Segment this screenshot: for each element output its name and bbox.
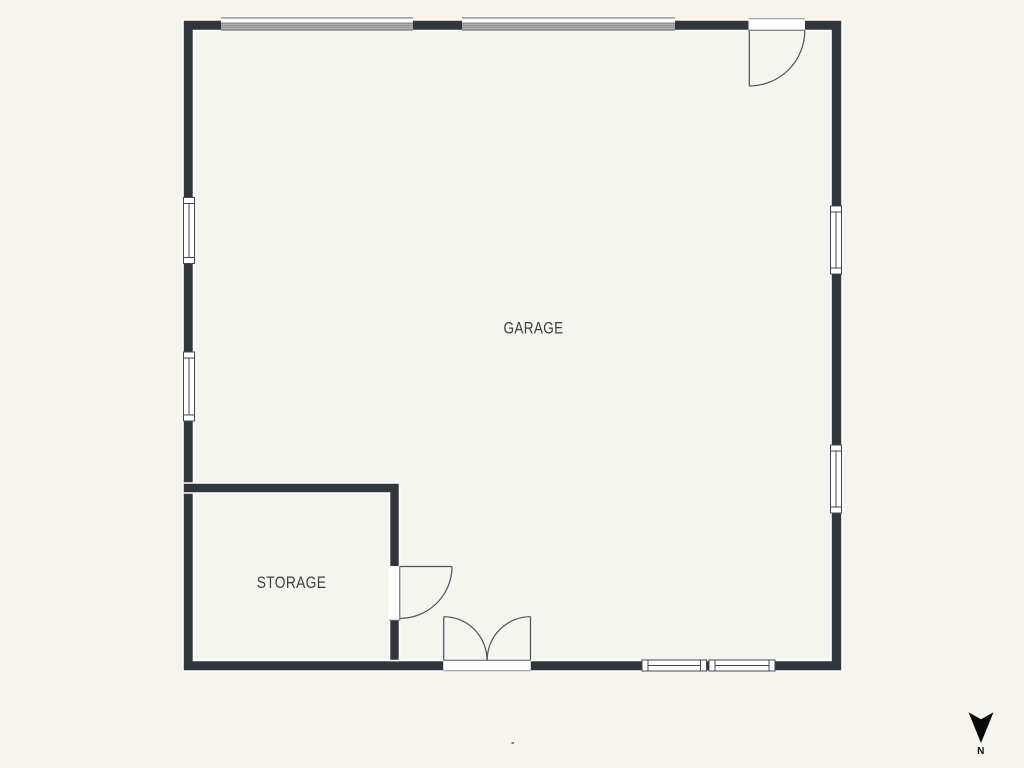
svg-text:N: N [977,746,984,757]
svg-text:GARAGE: GARAGE [504,320,564,338]
svg-text:STORAGE: STORAGE [257,574,327,592]
